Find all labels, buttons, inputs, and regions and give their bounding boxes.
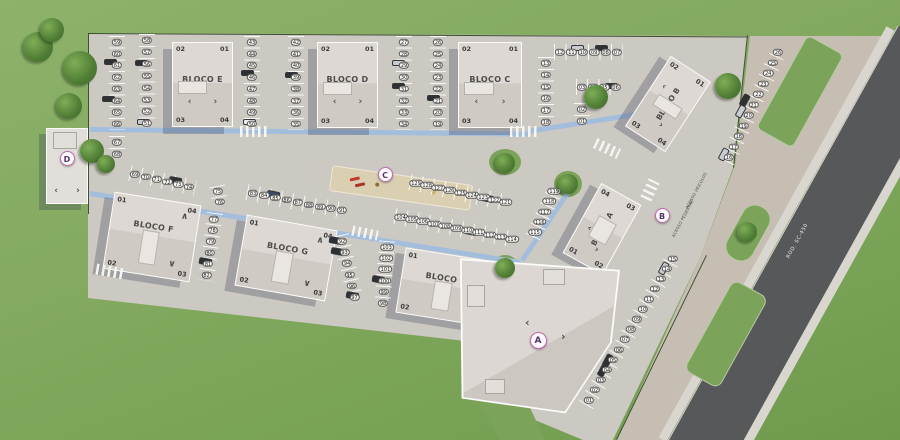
unit-number: 03	[177, 269, 187, 278]
parking-space-number: 42	[291, 39, 301, 46]
parking-space-number: 14	[541, 72, 551, 79]
parking-space-number: 57	[142, 49, 152, 56]
parking-space-number: 72	[162, 178, 172, 185]
block-d: 02 01 03 04 BLOCO D ‹ ›	[317, 42, 378, 128]
parking-space-number: 40	[291, 62, 301, 69]
parking-space-number: 11	[644, 296, 654, 303]
parking-space-number: 14	[662, 265, 672, 272]
tree	[63, 51, 97, 85]
unit-number: 04	[365, 117, 374, 125]
parking-space-number: 102	[379, 255, 393, 262]
parking-space-number: 21	[748, 101, 758, 108]
parking-space-number: 71	[151, 176, 161, 183]
parking-space-number: 44	[247, 50, 257, 57]
entrance-arrow-left-icon: ‹	[188, 98, 192, 107]
parking-space-number: 08	[626, 326, 636, 333]
parking-space-number: 97	[349, 294, 359, 301]
stairwell	[323, 82, 352, 95]
entrance-arrow-icon: ‹	[660, 82, 668, 92]
roof-detail	[53, 132, 77, 149]
unit-number: 02	[239, 275, 249, 284]
parking-space-number: 65	[112, 109, 122, 116]
play-equipment	[350, 176, 360, 181]
tree	[40, 18, 64, 42]
parking-space-number: 07	[620, 336, 630, 343]
parking-space-number: 26	[433, 39, 443, 46]
parking-space-number: 10	[638, 306, 648, 313]
parking-space-number: 19	[739, 122, 749, 129]
parking-space-number: 29	[399, 62, 409, 69]
parking-space-number: 36	[291, 109, 301, 116]
entrance-arrow-icon: ›	[76, 187, 80, 196]
parking-space-number: 23	[758, 80, 768, 87]
parking-space-number: 09	[589, 49, 599, 56]
parking-space-number: 25	[433, 50, 443, 57]
parking-space-number: 93	[339, 249, 349, 256]
parking-space-number: 01	[577, 118, 587, 125]
parking-space-number: 06	[610, 84, 620, 91]
tree	[584, 85, 608, 109]
unit-number: 02	[176, 45, 185, 53]
parking-space-number: 02	[577, 106, 587, 113]
parking-space-number: 92	[337, 238, 347, 245]
marker-c: C	[378, 167, 393, 182]
parking-space-number: 19	[433, 121, 443, 128]
parking-space-number: 82	[201, 272, 211, 279]
parking-space-number: 99	[379, 289, 389, 296]
parking-space-number: 52	[142, 108, 152, 115]
parking-space-number: 24	[433, 62, 443, 69]
parking-space-number: 21	[433, 97, 443, 104]
entrance-arrow-icon: ∨	[167, 260, 176, 270]
parking-space-number: 18	[541, 119, 551, 126]
parking-space-number: 01	[584, 397, 594, 404]
parking-space-number: 13	[656, 276, 666, 283]
parking-space-number: 80	[204, 249, 214, 256]
block-e: 02 01 03 04 BLOCO E ‹ ›	[172, 42, 233, 127]
parking-space-number: 30	[399, 74, 409, 81]
entrance-arrow-icon: ∨	[303, 279, 312, 289]
tree	[558, 174, 578, 194]
parking-space-number: 37	[291, 97, 301, 104]
unit-number: 04	[220, 116, 229, 124]
parking-space-number: 48	[247, 97, 257, 104]
entrance-arrow-right-icon: ›	[214, 98, 218, 107]
parking-space-number: 46	[247, 74, 257, 81]
parking-space-number: 24	[763, 70, 773, 77]
parking-space-number: 84	[259, 192, 269, 199]
parking-space-number: 87	[293, 199, 303, 206]
unit-number: 01	[567, 245, 579, 256]
entrance-arrow-right-icon: ›	[502, 98, 506, 107]
entrance-arrow-left-icon: ‹	[475, 98, 479, 107]
parking-space-number: 79	[206, 238, 216, 245]
parking-space-number: 45	[247, 62, 257, 69]
parking-space-number: 16	[724, 154, 734, 161]
crosswalk	[510, 126, 540, 137]
roof-detail	[485, 379, 505, 394]
parking-space-number: 118	[543, 198, 557, 205]
parking-space-number: 56	[142, 61, 152, 68]
parking-space-number: 53	[142, 96, 152, 103]
parking-space-number: 06	[614, 346, 624, 353]
unit-number: 04	[656, 136, 668, 148]
parking-space-number: 50	[247, 121, 257, 128]
entrance-arrow-left-icon: ‹	[333, 98, 337, 107]
parking-space-number: 70	[141, 173, 151, 180]
parking-space-number: 22	[753, 91, 763, 98]
parking-space-number: 18	[734, 133, 744, 140]
parking-space-number: 20	[743, 112, 753, 119]
parking-space-number: 20	[433, 109, 443, 116]
parking-space-number: 63	[112, 86, 122, 93]
unit-number: 03	[630, 119, 642, 131]
unit-number: 01	[220, 45, 229, 53]
tree	[715, 73, 741, 99]
entrance-arrow-icon: ∧	[180, 212, 189, 222]
entrance-arrow-right-icon: ›	[359, 98, 363, 107]
parking-space-number: 115	[528, 229, 542, 236]
parking-space-number: 75	[213, 188, 223, 195]
tree	[97, 155, 115, 173]
tree	[56, 93, 82, 119]
parking-space-number: 54	[142, 84, 152, 91]
parking-space-number: 15	[668, 255, 678, 262]
parking-space-number: 91	[337, 207, 347, 214]
parking-space-number: 86	[281, 197, 291, 204]
parking-space-number: 95	[344, 271, 354, 278]
parking-space-number: 02	[590, 387, 600, 394]
parking-space-number: 74	[184, 183, 194, 190]
parking-space-number: 103	[380, 244, 394, 251]
unit-number: 01	[249, 218, 259, 227]
unit-number: 03	[462, 117, 471, 125]
parking-space-number: 66	[112, 121, 122, 128]
play-equipment	[355, 182, 365, 187]
parking-space-number: 49	[247, 109, 257, 116]
parking-space-number: 39	[291, 74, 301, 81]
parking-space-number: 26	[773, 49, 783, 56]
parking-space-number: 41	[291, 50, 301, 57]
parking-space-number: 25	[768, 59, 778, 66]
unit-number: 03	[176, 116, 185, 124]
block-c: 02 01 03 04 BLOCO C ‹ ›	[458, 42, 522, 128]
parking-space-number: 69	[130, 171, 140, 178]
parking-space-number: 34	[399, 121, 409, 128]
unit-number: 01	[117, 195, 127, 204]
parking-space-number: 17	[541, 107, 551, 114]
parking-space-number: 51	[142, 120, 152, 127]
parking-space-number: 08	[600, 49, 610, 56]
parking-space-number: 07	[612, 49, 622, 56]
parking-space-number: 27	[399, 39, 409, 46]
site-plan: ROD. SC-450 02 01 03 04 BLOCO E ‹ › 02 0…	[0, 0, 900, 440]
marker-b: B	[655, 208, 670, 223]
parking-space-number: 32	[399, 97, 409, 104]
parking-space-number: 89	[315, 204, 325, 211]
parking-space-number: 94	[342, 260, 352, 267]
unit-number: 02	[400, 302, 410, 311]
parking-space-number: 05	[608, 356, 618, 363]
parking-space-number: 15	[541, 83, 551, 90]
play-equipment	[375, 182, 380, 187]
parking-space-number: 61	[112, 62, 122, 69]
parking-space-number: 90	[326, 205, 336, 212]
parking-space-number: 81	[203, 261, 213, 268]
tree	[495, 258, 515, 278]
stairwell	[431, 280, 453, 311]
stairwell	[137, 229, 160, 265]
unit-number: 03	[313, 288, 323, 297]
unit-number: 04	[509, 117, 518, 125]
parking-space-number: 114	[505, 236, 519, 243]
parking-space-number: 73	[173, 181, 183, 188]
entrance-arrow-icon: ∧	[316, 236, 325, 246]
parking-space-number: 76	[215, 198, 225, 205]
parking-space-number: 96	[347, 283, 357, 290]
parking-space-number: 121	[499, 199, 513, 206]
parking-space-number: 78	[207, 227, 217, 234]
unit-number: 02	[668, 60, 680, 72]
parking-space-number: 28	[399, 50, 409, 57]
unit-number: 01	[365, 45, 374, 53]
marker-d: D	[60, 151, 75, 166]
entrance-arrow-icon: ‹	[525, 317, 530, 328]
parking-space-number: 85	[270, 194, 280, 201]
parking-space-number: 11	[566, 49, 576, 56]
unit-number: 03	[321, 117, 330, 125]
unit-number: 01	[509, 45, 518, 53]
parking-space-number: 98	[378, 300, 388, 307]
marker-a: A	[530, 332, 547, 349]
entrance-arrow-icon: ‹	[54, 187, 58, 196]
tree	[737, 222, 757, 242]
parking-space-number: 16	[541, 95, 551, 102]
parking-space-number: 38	[291, 86, 301, 93]
parking-space-number: 13	[541, 60, 551, 67]
unit-number: 04	[599, 187, 611, 198]
parking-space-number: 47	[247, 86, 257, 93]
crosswalk	[240, 126, 270, 137]
unit-number: 01	[408, 251, 418, 260]
parking-space-number: 23	[433, 74, 443, 81]
parking-space-number: 88	[304, 201, 314, 208]
unit-number: 02	[462, 45, 471, 53]
parking-space-number: 83	[248, 190, 258, 197]
parking-space-number: 64	[112, 97, 122, 104]
parking-space-number: 116	[533, 219, 547, 226]
parking-space-number: 55	[142, 72, 152, 79]
parking-space-number: 67	[112, 139, 122, 146]
parking-space-number: 12	[650, 286, 660, 293]
parking-space-number: 100	[378, 277, 392, 284]
stairwell	[464, 82, 495, 95]
unit-number: 01	[694, 77, 706, 89]
parking-space-number: 31	[399, 86, 409, 93]
roof-detail	[467, 285, 485, 307]
parking-space-number: 60	[112, 50, 122, 57]
roof-detail	[543, 269, 565, 285]
parking-stalls	[538, 57, 554, 128]
parking-space-number: 17	[729, 143, 739, 150]
unit-number: 03	[625, 201, 637, 212]
parking-space-number: 09	[632, 316, 642, 323]
stairwell	[178, 81, 207, 94]
parking-space-number: 68	[112, 151, 122, 158]
parking-space-number: 35	[291, 121, 301, 128]
parking-space-number: 43	[247, 39, 257, 46]
parking-space-number: 12	[555, 49, 565, 56]
parking-space-number: 22	[433, 86, 443, 93]
parking-space-number: 58	[142, 37, 152, 44]
parking-space-number: 62	[112, 74, 122, 81]
parking-space-number: 33	[399, 109, 409, 116]
parking-space-number: 59	[112, 39, 122, 46]
parking-space-number: 101	[379, 266, 393, 273]
parking-space-number: 77	[209, 216, 219, 223]
parking-space-number: 10	[578, 49, 588, 56]
stairwell	[271, 251, 294, 285]
parking-space-number: 117	[538, 208, 552, 215]
parking-space-number: 03	[596, 377, 606, 384]
tree	[495, 153, 515, 173]
entrance-arrow-icon: ›	[561, 331, 566, 342]
parking-space-number: 04	[602, 366, 612, 373]
unit-number: 02	[321, 45, 330, 53]
